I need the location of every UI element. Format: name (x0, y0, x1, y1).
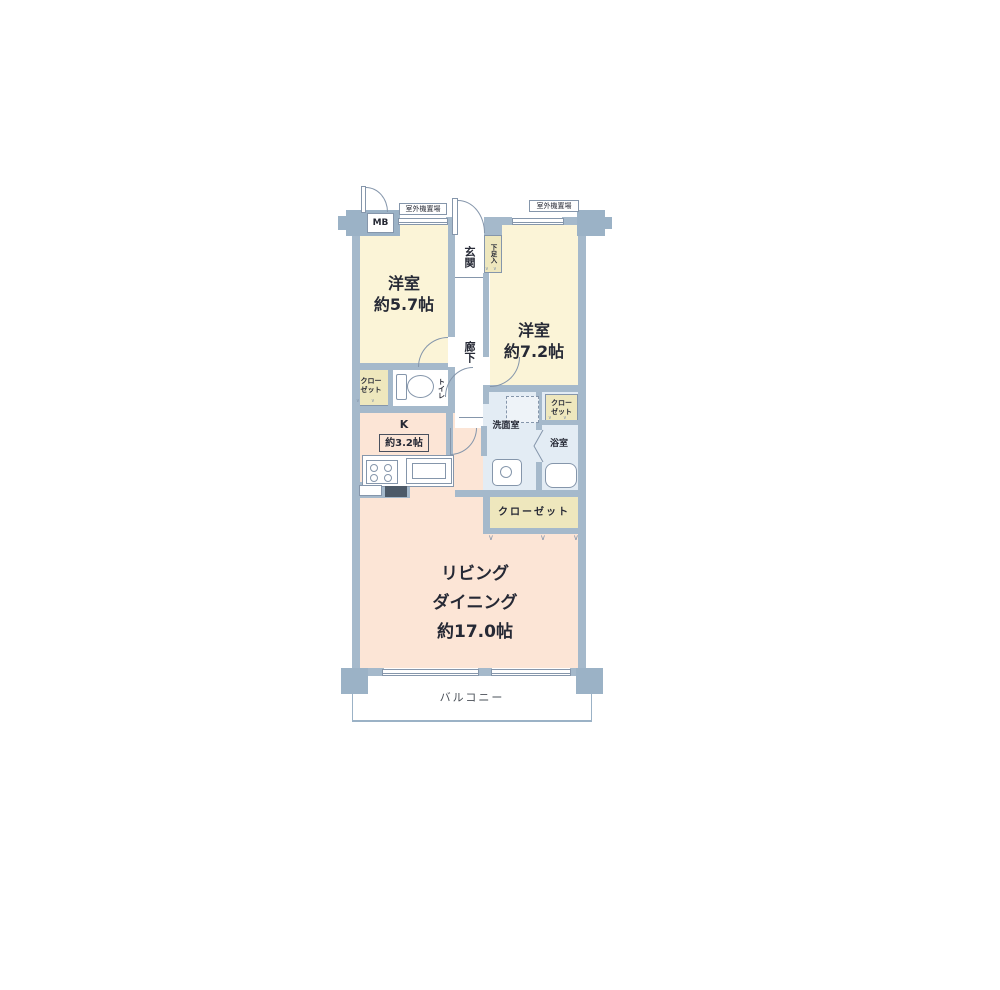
bedroom1-name: 洋室 (388, 273, 420, 294)
wall (536, 462, 542, 490)
folding-door-mark: ∨ (548, 416, 552, 421)
outdoor-unit-left-label: 室外機置場 (406, 204, 441, 214)
closet-right-line1: クロー (551, 399, 572, 408)
meter-box: MB (367, 213, 394, 233)
outdoor-unit-right: 室外機置場 (529, 200, 579, 212)
front-door-arc (458, 200, 485, 233)
bathroom-text: 浴室 (550, 439, 568, 451)
bedroom2-size: 約7.2帖 (504, 341, 564, 362)
washing-machine-icon (506, 396, 539, 423)
stove-icon (366, 460, 398, 484)
balcony-label: バルコニー (353, 690, 591, 706)
pipe-space-box (359, 485, 382, 496)
wall (483, 385, 586, 392)
floorplan: MB 室外機置場 室外機置場 洋室 約5.7帖 洋室 約7.2帖 リビング ダイ… (0, 0, 1000, 990)
shoe-box-text: 下足入 (488, 244, 498, 264)
folding-door-mark: ∨ (563, 416, 567, 421)
wall (483, 528, 586, 534)
closet-wide-text: クローゼット (498, 506, 570, 519)
bathroom-folding-door-icon (530, 428, 546, 464)
closet-left-line1: クロー (361, 377, 382, 386)
mb-door-arc (366, 187, 388, 212)
washroom-text: 洗面室 (492, 421, 519, 433)
pillar (604, 217, 612, 229)
window (512, 218, 564, 225)
living-line1: リビング (441, 560, 509, 589)
pillar (338, 216, 347, 230)
wall (352, 406, 452, 413)
kitchen-size-box: 約3.2帖 (379, 434, 429, 452)
folding-door-mark: ∨ (488, 534, 494, 542)
hallway-label: 廊下 (460, 335, 478, 369)
living-dining-label: リビング ダイニング 約17.0帖 (400, 558, 550, 648)
folding-door-mark: ∨ (540, 534, 546, 542)
kitchen-name: K (400, 418, 409, 432)
bedroom1-size: 約5.7帖 (374, 294, 434, 315)
bathtub-icon (545, 463, 577, 488)
window (491, 669, 571, 676)
entrance-step-line (455, 277, 483, 278)
toilet-text: トイレ (437, 378, 447, 399)
balcony-text: バルコニー (440, 691, 505, 705)
kitchen-size: 約3.2帖 (385, 437, 423, 450)
washroom-door-line (459, 417, 483, 418)
bedroom1-label: 洋室 約5.7帖 (352, 270, 456, 318)
bedroom2-name: 洋室 (518, 320, 550, 341)
entrance-label: 玄関 (460, 239, 478, 275)
folding-door-mark: ∨ (485, 267, 489, 272)
outdoor-unit-left: 室外機置場 (399, 203, 447, 215)
wall (455, 490, 586, 497)
window (382, 669, 479, 676)
wall (478, 668, 492, 676)
living-line2: ダイニング (433, 589, 518, 618)
equipment-box (385, 486, 407, 497)
balcony: バルコニー (352, 676, 592, 722)
folding-door-mark: ∨ (573, 534, 579, 542)
bedroom2-label: 洋室 約7.2帖 (486, 316, 582, 366)
window (398, 218, 448, 225)
living-line3: 約17.0帖 (437, 618, 513, 647)
stove-burner (384, 474, 392, 482)
washroom-label: 洗面室 (486, 421, 526, 433)
closet-right-line2: ゼット (551, 408, 572, 417)
washbasin-bowl-icon (500, 466, 512, 478)
toilet-tank-icon (396, 374, 407, 400)
closet-left-label: クロー ゼット (353, 371, 389, 401)
sink-icon (406, 458, 452, 484)
closet-left-line2: ゼット (361, 386, 382, 395)
pillar (577, 210, 605, 236)
folding-door-mark: ∨ (371, 399, 375, 404)
stove-burner (384, 464, 392, 472)
toilet-label: トイレ (436, 371, 447, 405)
wall (562, 217, 578, 225)
stove-burner (370, 474, 378, 482)
folding-door-mark: ∨ (356, 399, 360, 404)
folding-door-mark: ∨ (493, 267, 497, 272)
toilet-bowl-icon (407, 375, 434, 398)
entrance-text: 玄関 (461, 246, 477, 268)
outdoor-unit-right-label: 室外機置場 (537, 201, 572, 211)
kitchen-name-label: K (392, 418, 416, 432)
stove-burner (370, 464, 378, 472)
wall (484, 225, 502, 235)
wall (484, 217, 512, 225)
meter-box-label: MB (373, 218, 389, 228)
wall (578, 217, 586, 668)
sink-basin (412, 463, 446, 479)
hallway-text: 廊下 (461, 341, 477, 363)
bathroom-label: 浴室 (546, 439, 572, 451)
closet-wide-label: クローゼット (490, 499, 578, 526)
